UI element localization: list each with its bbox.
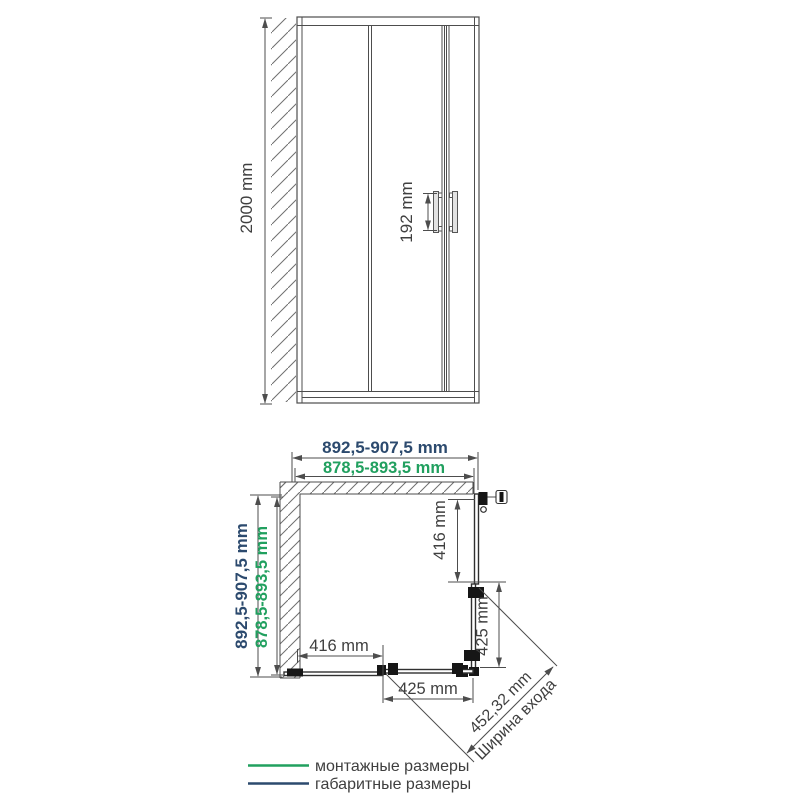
plan-left-mounting-label: 878,5-893,5 mm — [253, 526, 271, 648]
right-fixed-panel-dimension: 416 mm — [431, 500, 506, 583]
right-fixed-panel-label: 416 mm — [431, 500, 449, 560]
handle-dim-label: 192 mm — [397, 181, 416, 242]
front-height-dimension: 2000 mm — [237, 18, 272, 404]
door-clip-icon — [388, 663, 398, 675]
wall-hatch-strip — [271, 18, 296, 402]
plan-left-wall — [280, 482, 300, 678]
plan-left-overall-label: 892,5-907,5 mm — [232, 523, 251, 649]
wall-profile-bracket-icon — [479, 491, 508, 513]
right-door-label: 425 mm — [474, 596, 492, 656]
bottom-fixed-panel-dimension: 416 mm — [298, 637, 384, 703]
plan-top-mounting-label: 878,5-893,5 mm — [323, 459, 445, 477]
wall-clip-icon — [287, 669, 303, 677]
right-fixed-panel — [475, 494, 479, 584]
door-clip-icon — [377, 665, 386, 675]
shower-enclosure-drawing: 2000 mm 192 mm — [0, 0, 800, 800]
plan-top-overall-label: 892,5-907,5 mm — [322, 438, 448, 457]
legend-mounting-label: монтажные размеры — [315, 758, 469, 775]
legend: монтажные размеры габаритные размеры — [248, 758, 471, 793]
front-frame — [297, 17, 479, 403]
bottom-door-dimension: 425 mm — [384, 678, 473, 703]
legend-overall-label: габаритные размеры — [315, 776, 471, 793]
front-view: 2000 mm 192 mm — [237, 17, 479, 404]
plan-top-wall — [280, 482, 473, 494]
technical-drawing-page: 2000 mm 192 mm — [0, 0, 800, 800]
bottom-fixed-panel-label: 416 mm — [309, 637, 369, 655]
plan-view: 892,5-907,5 mm 878,5-893,5 mm 892,5-907,… — [232, 438, 560, 764]
plan-left-dimensions: 892,5-907,5 mm 878,5-893,5 mm — [232, 495, 283, 677]
front-height-dim-label: 2000 mm — [237, 163, 256, 234]
door-stopper-icon — [452, 663, 463, 674]
